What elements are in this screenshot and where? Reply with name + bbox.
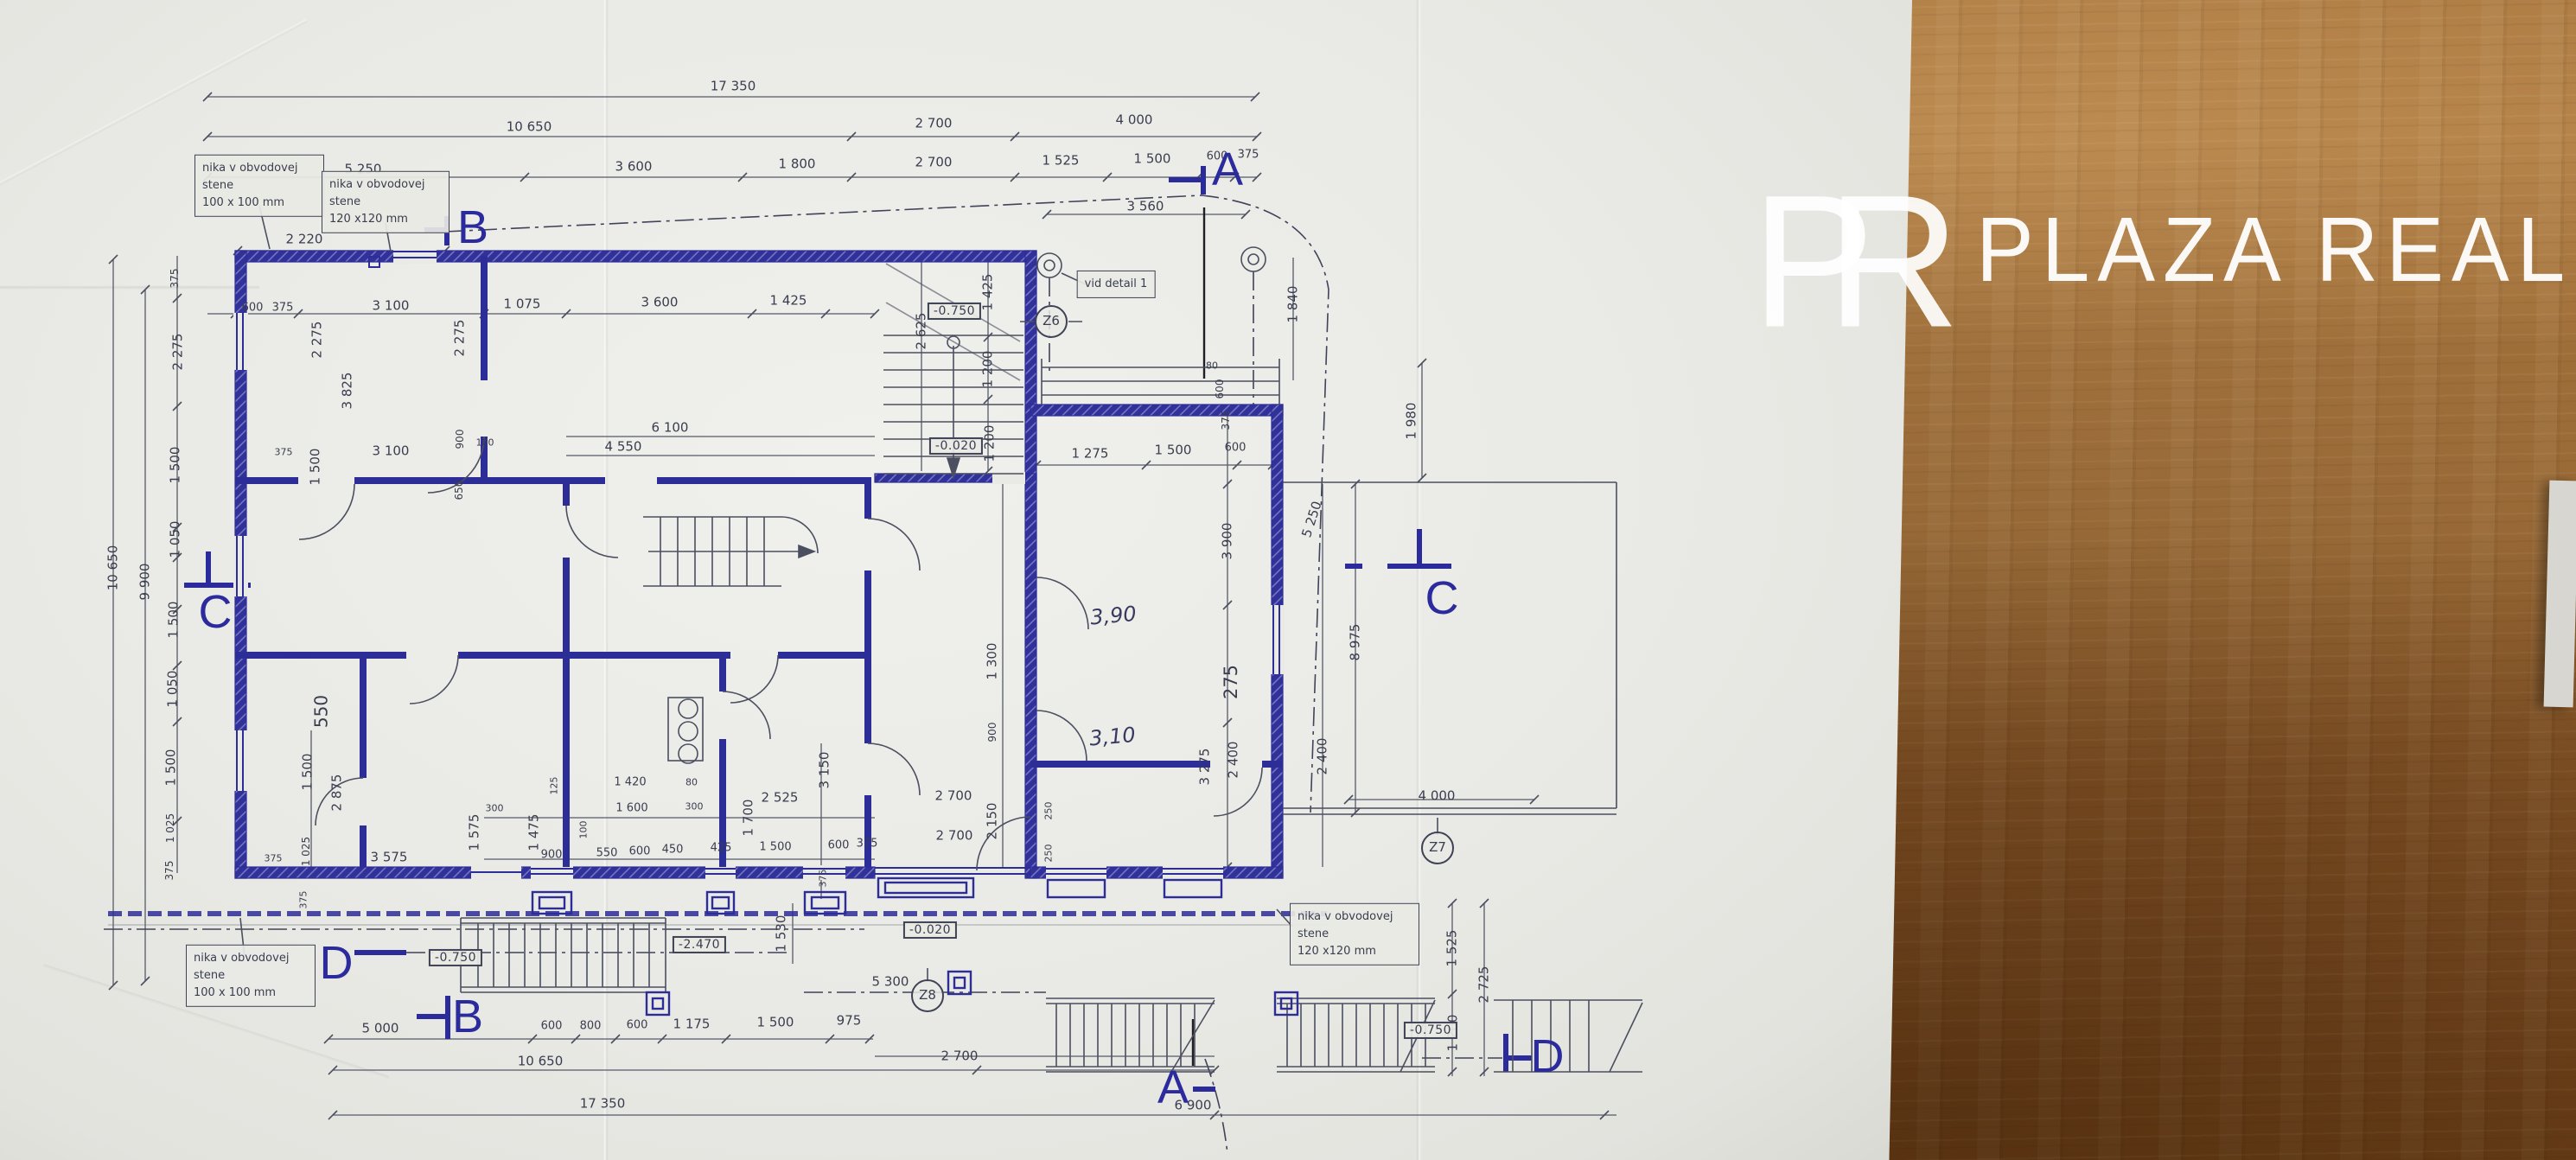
dim-label: 2 700	[915, 116, 953, 131]
dim-label: 900	[455, 430, 467, 449]
note-box: vid detail 1	[1077, 271, 1156, 298]
dim-label: 600	[1225, 443, 1247, 456]
dim-label: 375	[164, 861, 176, 881]
dim-label: 3 275	[1197, 749, 1212, 786]
dim-label: 1 200	[980, 351, 995, 388]
detail-marker: Z7	[1421, 832, 1454, 864]
dim-label: 5 300	[872, 974, 909, 989]
dim-label: 1 050	[168, 521, 182, 558]
dim-label: 650	[454, 481, 466, 500]
section-marker: C	[1425, 571, 1459, 625]
dim-label: 1 525	[1043, 153, 1080, 168]
dim-label: 975	[837, 1013, 862, 1028]
dim-label: 2 275	[309, 322, 324, 359]
dim-label: 550	[596, 848, 618, 861]
dim-label: 8 975	[1348, 624, 1362, 661]
dim-label: 1 530	[774, 915, 788, 953]
dim-label: 1 175	[673, 1017, 711, 1031]
dim-label: 300	[685, 802, 704, 813]
blueprint-paper: 17 35010 6502 7004 0005 2503 6001 8002 7…	[0, 0, 1912, 1160]
dim-label: 1 275	[1072, 446, 1109, 461]
elevation-label: -0.750	[1404, 1022, 1457, 1039]
dim-label: 600	[629, 846, 651, 859]
dim-label: 2 275	[170, 334, 185, 371]
dim-label: 600	[242, 303, 264, 315]
drawing-labels: 17 35010 6502 7004 0005 2503 6001 8002 7…	[0, 0, 1912, 1160]
dim-label: 10 650	[105, 545, 120, 591]
dim-label: 375	[265, 854, 283, 865]
dim-label: 600	[541, 1021, 563, 1034]
note-box: nika v obvodovej stene 100 x 100 mm	[186, 945, 316, 1007]
plaza-real-logo-monogram: PR	[1751, 168, 1912, 356]
dim-label: 550	[312, 695, 332, 728]
detail-marker: Z6	[1035, 305, 1068, 338]
dim-label: 375	[1221, 411, 1233, 430]
dim-label: 9 900	[137, 564, 152, 601]
dim-label: 900	[987, 723, 999, 743]
dim-label: 3 825	[340, 373, 354, 410]
dim-label: 3 600	[641, 295, 679, 309]
dim-label: 1 525	[1444, 930, 1459, 967]
dim-label: 1 840	[1285, 286, 1300, 323]
dim-label: 1 300	[985, 643, 999, 680]
elevation-label: -2.470	[673, 936, 726, 953]
dim-label: 2 700	[935, 788, 972, 803]
dim-label: 1 500	[759, 842, 791, 855]
dim-label: 1 500	[1155, 443, 1192, 457]
dim-label: 3 560	[1127, 199, 1164, 214]
dim-label: 3 600	[615, 159, 653, 174]
dim-label: 1 420	[614, 777, 646, 790]
dim-label: 10 650	[518, 1054, 564, 1068]
dim-label: 1 575	[467, 814, 481, 851]
dim-label: 2 525	[762, 790, 799, 805]
dim-label: 4 550	[605, 439, 642, 454]
dim-label: 100	[476, 438, 494, 449]
dim-label: 300	[486, 804, 504, 815]
dim-label: 375	[819, 870, 830, 888]
dim-label: 250	[1044, 845, 1055, 863]
dim-label: 1 500	[168, 447, 182, 484]
room-label: 3,10	[1088, 723, 1137, 751]
dim-label: 1 500	[308, 449, 322, 486]
section-marker: C	[199, 585, 233, 639]
dim-label: 600	[828, 840, 850, 853]
dim-label: 6 100	[652, 420, 689, 435]
dim-label: 1 500	[1134, 151, 1171, 166]
note-box: nika v obvodovej stene 120 x120 mm	[322, 171, 450, 233]
dim-label: 1 500	[163, 749, 178, 787]
second-paper-edge	[2544, 481, 2576, 708]
dim-label: 3 150	[817, 752, 832, 789]
dim-label: 2 700	[941, 1048, 979, 1063]
section-marker: B	[457, 201, 488, 254]
dim-label: 1 980	[1404, 403, 1419, 440]
dim-label: 17 350	[711, 79, 756, 93]
dim-label: 1 800	[779, 156, 816, 171]
dim-label: 2 725	[1476, 966, 1491, 1004]
dim-label: 2 700	[915, 155, 953, 169]
dim-label: 2 400	[1226, 742, 1240, 779]
dim-label: 4 000	[1116, 112, 1153, 127]
dim-label: 1 500	[166, 602, 181, 639]
section-marker: D	[320, 936, 354, 990]
dim-label: 375	[169, 269, 182, 289]
dim-label: 1 025	[165, 813, 177, 843]
dim-label: 1 500	[757, 1015, 794, 1029]
dim-label: 450	[662, 845, 684, 857]
dim-label: 3 575	[371, 850, 408, 864]
dim-label: 900	[541, 850, 563, 863]
dim-label: 3 100	[373, 443, 410, 458]
dim-label: 600	[1215, 379, 1227, 399]
plaza-real-brand-text: PLAZA REAL	[1976, 204, 2573, 296]
dim-label: 1 050	[165, 671, 180, 708]
dim-label: 2 400	[1315, 738, 1329, 775]
dim-label: 3 100	[373, 298, 410, 313]
dim-label: 125	[550, 777, 561, 795]
dim-label: 1 425	[770, 293, 807, 308]
dim-label: 2 700	[936, 828, 973, 843]
dim-label: 17 350	[580, 1096, 626, 1111]
dim-label: 80	[1206, 361, 1218, 373]
dim-label: 250	[1044, 802, 1055, 820]
dim-label: 100	[579, 821, 590, 839]
section-marker: D	[1531, 1029, 1565, 1083]
dim-label: 10 650	[507, 119, 552, 134]
detail-marker: Z8	[911, 979, 944, 1012]
dim-label: 800	[580, 1021, 602, 1034]
dim-label: 1 075	[504, 296, 541, 311]
dim-label: 5 250	[1299, 500, 1325, 539]
elevation-label: -0.750	[928, 303, 981, 320]
dim-label: 275	[1221, 665, 1241, 699]
dim-label: 1 425	[980, 274, 995, 311]
dim-label: 600	[627, 1020, 648, 1033]
dim-label: 2 875	[329, 774, 344, 812]
elevation-label: -0.020	[903, 921, 957, 939]
dim-label: 80	[685, 778, 698, 789]
note-box: nika v obvodovej stene 120 x120 mm	[1290, 903, 1419, 966]
dim-label: 2 150	[985, 803, 999, 840]
dim-label: 375	[857, 838, 878, 851]
dim-label: 1 025	[301, 837, 313, 866]
dim-label: 425	[711, 843, 732, 856]
dim-label: 375	[299, 891, 310, 909]
dim-label: 1 500	[300, 754, 315, 791]
dim-label: 2 275	[452, 320, 467, 357]
dim-label: 1 200	[982, 425, 997, 462]
dim-label: 4 000	[1419, 788, 1456, 803]
section-marker: A	[1157, 1061, 1189, 1114]
room-label: 3,90	[1089, 602, 1138, 630]
dim-label: 375	[275, 448, 293, 459]
dim-label: 2 220	[286, 232, 323, 246]
dim-label: 1 475	[526, 814, 541, 851]
elevation-label: -0.020	[929, 437, 983, 455]
section-marker: B	[452, 990, 483, 1043]
dim-label: 1 700	[741, 800, 756, 837]
dim-label: 1 600	[615, 803, 647, 816]
dim-label: 375	[272, 303, 294, 315]
elevation-label: -0.750	[429, 949, 482, 966]
section-marker: A	[1212, 143, 1243, 196]
dim-label: 5 000	[362, 1021, 399, 1036]
desk-photo-scene: 17 35010 6502 7004 0005 2503 6001 8002 7…	[0, 0, 2576, 1160]
dim-label: 3 900	[1220, 523, 1234, 560]
note-box: nika v obvodovej stene 100 x 100 mm	[194, 155, 324, 217]
